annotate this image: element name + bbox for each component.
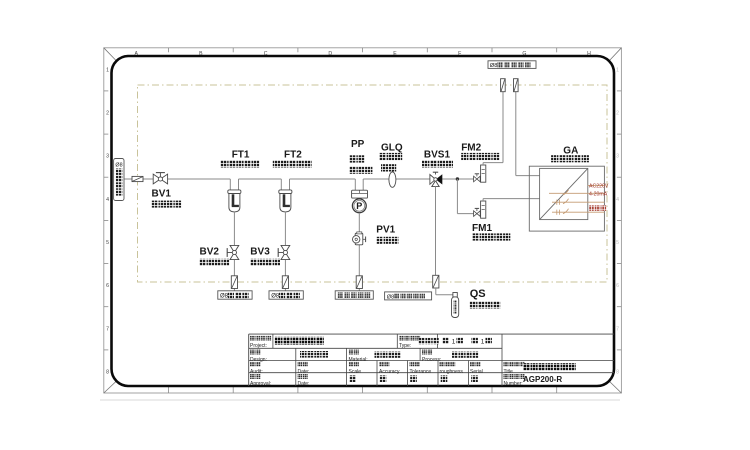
svg-text:1: 1 — [616, 67, 619, 73]
svg-text:GLQ: GLQ — [381, 143, 403, 154]
svg-text:Ø8: Ø8 — [387, 294, 394, 300]
svg-text:1: 1 — [106, 67, 109, 73]
svg-text:8: 8 — [106, 369, 109, 375]
svg-text:Scale: Scale — [349, 369, 362, 375]
svg-text:4: 4 — [106, 197, 109, 203]
svg-text:Ø8: Ø8 — [220, 294, 229, 300]
svg-text:P: P — [356, 201, 362, 211]
svg-text:AGP200-R: AGP200-R — [523, 375, 562, 384]
svg-text:Accuracy: Accuracy — [379, 369, 400, 375]
svg-text:5: 5 — [106, 240, 109, 246]
svg-text:6: 6 — [616, 283, 619, 289]
svg-text:FM1: FM1 — [472, 223, 492, 234]
svg-text:7: 7 — [616, 326, 619, 332]
svg-text:2: 2 — [106, 111, 109, 117]
svg-text:Number:: Number: — [504, 381, 523, 387]
svg-text:BV2: BV2 — [200, 247, 220, 258]
svg-text:FT1: FT1 — [232, 149, 250, 160]
svg-text:8: 8 — [616, 369, 619, 375]
svg-text:BV3: BV3 — [250, 247, 270, 258]
svg-text:BV1: BV1 — [152, 189, 172, 200]
svg-text:Project:: Project: — [250, 343, 267, 349]
svg-text:1: 1 — [452, 338, 456, 345]
svg-text:7: 7 — [106, 326, 109, 332]
svg-text:FM2: FM2 — [461, 143, 481, 154]
svg-text:BVS1: BVS1 — [424, 149, 451, 160]
svg-text:2: 2 — [616, 111, 619, 117]
svg-text:4-20mA: 4-20mA — [589, 191, 608, 197]
svg-text:Ø8: Ø8 — [490, 63, 498, 69]
svg-text:1: 1 — [481, 338, 485, 345]
svg-text:Process:: Process: — [422, 357, 441, 363]
svg-text:4: 4 — [616, 197, 619, 203]
svg-text:AC220V: AC220V — [589, 184, 609, 190]
svg-text:PP: PP — [351, 139, 365, 150]
svg-text:Serial: Serial — [470, 369, 483, 375]
svg-text:3: 3 — [106, 154, 109, 160]
svg-text:Type:: Type: — [399, 343, 411, 349]
svg-text:FT2: FT2 — [284, 149, 302, 160]
svg-text:QS: QS — [470, 288, 486, 300]
svg-text:PV1: PV1 — [376, 225, 395, 236]
svg-text:roughness: roughness — [440, 369, 464, 375]
svg-text:Date:: Date: — [298, 381, 310, 387]
svg-text:GA: GA — [563, 145, 578, 156]
svg-text:Ø8: Ø8 — [115, 163, 122, 169]
svg-text:6: 6 — [106, 283, 109, 289]
svg-text:Ø8: Ø8 — [271, 294, 280, 300]
svg-text:Approval:: Approval: — [250, 381, 271, 387]
svg-text:5: 5 — [616, 240, 619, 246]
svg-text:Tolerance: Tolerance — [410, 369, 432, 375]
svg-text:3: 3 — [616, 154, 619, 160]
